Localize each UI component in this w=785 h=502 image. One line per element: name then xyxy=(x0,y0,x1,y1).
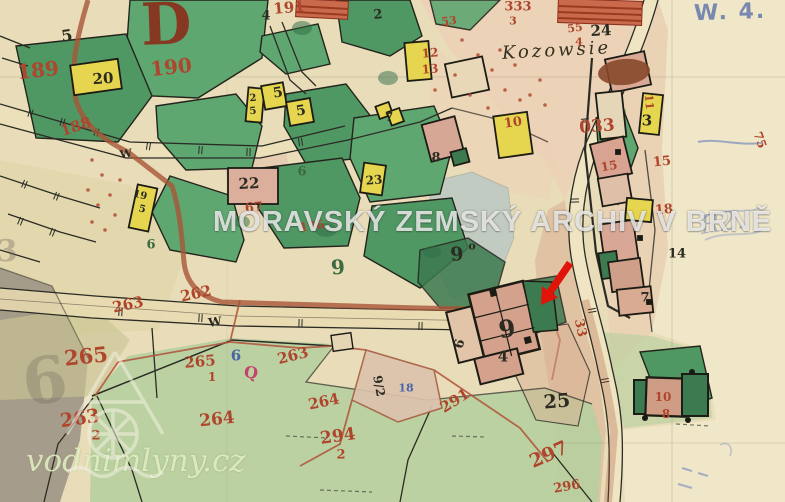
building-10 xyxy=(493,112,533,158)
hatched-building-top-center xyxy=(296,0,349,19)
hatched-building-top-right xyxy=(558,0,643,25)
registry-mark: W. 4. xyxy=(694,0,767,26)
archive-watermark-text: MORAVSKÝ ZEMSKÝ ARCHIV V BRNĚ xyxy=(213,206,772,239)
mill-wheel-watermark-icon xyxy=(55,338,175,488)
building-20 xyxy=(70,59,122,95)
building-11-3 xyxy=(639,93,663,135)
building-22 xyxy=(228,168,278,204)
section-letter: D xyxy=(140,0,193,59)
map-scan-viewport: D Kozowsie W. 4. R2. 1891901881913333535… xyxy=(0,0,785,502)
building-12-13 xyxy=(404,41,431,81)
